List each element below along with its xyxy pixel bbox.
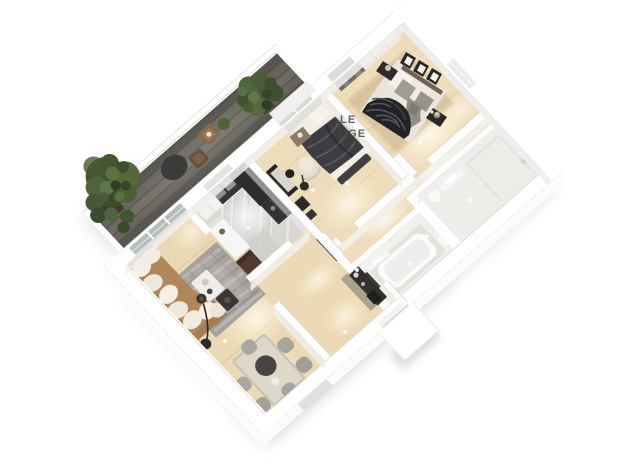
svg-text:DGE: DGE bbox=[339, 128, 366, 140]
svg-text:LE: LE bbox=[340, 114, 356, 126]
